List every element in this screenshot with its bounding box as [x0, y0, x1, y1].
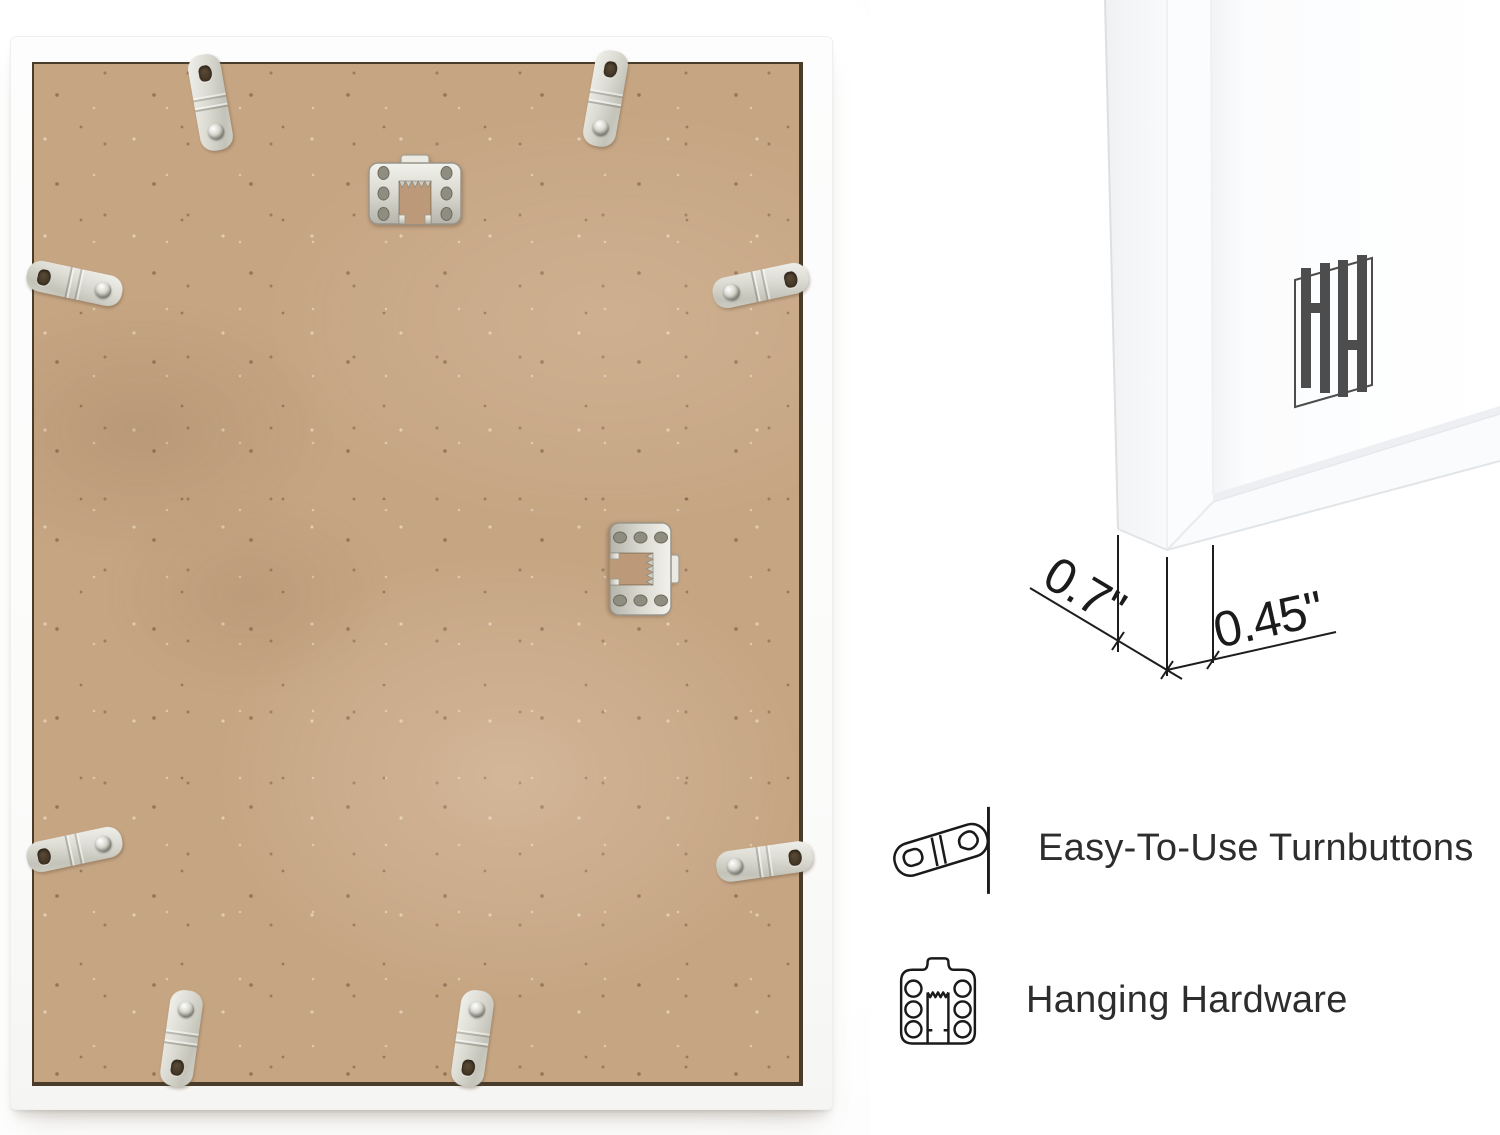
feature-label: Easy-To-Use Turnbuttons	[1038, 827, 1474, 870]
feature-hanging-hardware: Hanging Hardware	[886, 948, 1348, 1052]
product-image: 0.7" 0.45" Easy-To-Use Turnbuttons	[0, 0, 1500, 1135]
feature-turnbuttons: Easy-To-Use Turnbuttons	[886, 800, 1474, 897]
face-measurement-label: 0.45"	[1208, 580, 1328, 658]
frame-corner-diagram: 0.7" 0.45"	[1000, 0, 1500, 760]
depth-measurement-label: 0.7"	[1034, 545, 1134, 636]
hanging-hardware-icon	[886, 948, 990, 1052]
feature-label: Hanging Hardware	[1026, 979, 1348, 1022]
frame-back-photo	[0, 0, 870, 1135]
detail-frame-front-face	[1167, 0, 1213, 550]
detail-frame-side-face	[1105, 0, 1167, 550]
turnbutton-icon	[886, 800, 1002, 897]
sawtooth-hanger	[608, 522, 680, 616]
sawtooth-hanger	[368, 154, 462, 226]
